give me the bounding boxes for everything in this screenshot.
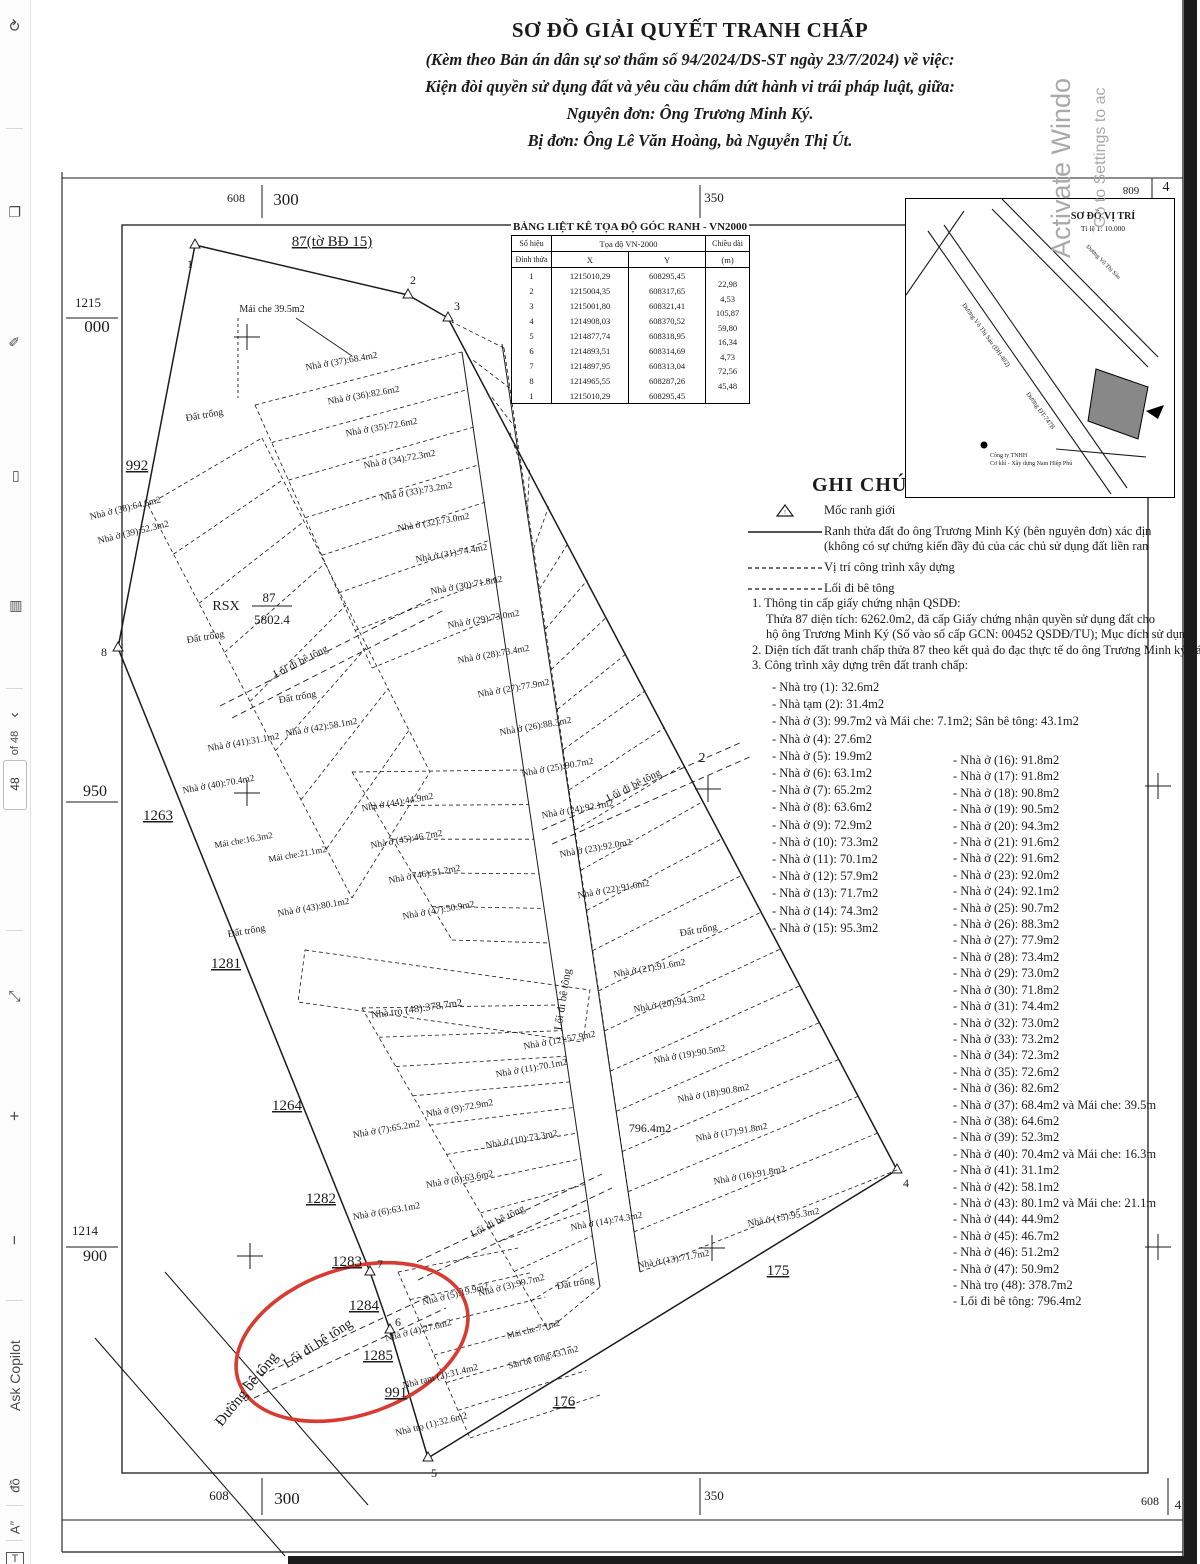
map-label: 000 bbox=[84, 317, 110, 336]
table-cell: 1214908,03 bbox=[552, 313, 629, 328]
list-item: - Nhà ở (19): 90.5m2 bbox=[953, 801, 1156, 817]
page-number-value: 48 bbox=[8, 773, 22, 795]
legend-item: Ranh thửa đất đo ông Trương Minh Ký (bên… bbox=[746, 524, 1196, 554]
map-label: 608 bbox=[209, 1488, 229, 1503]
chevron-icon[interactable]: ‹ bbox=[6, 700, 24, 730]
map-label: Nhà ở (22):91.6m2 bbox=[577, 878, 651, 902]
dashed-symbol bbox=[746, 560, 824, 575]
notes-block: 1. Thông tin cấp giấy chứng nhận QSDĐ: T… bbox=[752, 596, 1200, 674]
list-item: - Nhà ở (25): 90.7m2 bbox=[953, 900, 1156, 916]
translate-icon[interactable]: đồ bbox=[8, 1471, 23, 1501]
list-item: - Nhà ở (46): 51.2m2 bbox=[953, 1244, 1156, 1260]
map-label: 1284 bbox=[349, 1298, 380, 1314]
table-cell: 7 bbox=[512, 358, 552, 373]
list-item: - Nhà ở (17): 91.8m2 bbox=[953, 768, 1156, 784]
map-label: Nhà ở (29):73.0m2 bbox=[447, 608, 521, 632]
dashed-symbol bbox=[746, 581, 824, 596]
map-label: 175 bbox=[767, 1263, 790, 1279]
table-cell: 608321,41 bbox=[629, 298, 706, 313]
map-label: Nhà ở (31):74.4m2 bbox=[415, 542, 489, 566]
table-cell: 1215010,29 bbox=[552, 268, 629, 284]
map-label: Nhà ở (13):71.7m2 bbox=[637, 1248, 711, 1272]
map-label: Mái che 39.5m2 bbox=[239, 304, 304, 315]
map-label: Nhà ở (9):72.9m2 bbox=[425, 1097, 494, 1120]
list-item: - Nhà ở (33): 73.2m2 bbox=[953, 1031, 1156, 1047]
toolbar-divider bbox=[6, 1540, 23, 1541]
table-cell: 3 bbox=[512, 298, 552, 313]
map-label: 796.4m2 bbox=[629, 1121, 671, 1135]
map-label: Nhà ở (28):73.4m2 bbox=[457, 643, 531, 667]
list-item: - Nhà ở (29): 73.0m2 bbox=[953, 965, 1156, 981]
list-item: - Nhà ở (23): 92.0m2 bbox=[953, 867, 1156, 883]
table-cell: 1 bbox=[512, 268, 552, 284]
text-box-icon[interactable]: T bbox=[6, 1552, 24, 1564]
list-item: - Nhà ở (47): 50.9m2 bbox=[953, 1261, 1156, 1277]
map-label: Đất trống bbox=[556, 1275, 595, 1292]
map-label: Nhà ở (42):58.1m2 bbox=[285, 716, 359, 740]
map-label: 900 bbox=[83, 1248, 107, 1265]
length-value: 4,73 bbox=[706, 350, 749, 365]
length-value: 16,34 bbox=[706, 335, 749, 350]
map-label: Mái che:16.3m2 bbox=[214, 830, 274, 850]
list-item: - Nhà ở (28): 73.4m2 bbox=[953, 949, 1156, 965]
table-cell: 4 bbox=[512, 313, 552, 328]
title-sub1: (Kèm theo Bản án dân sự sơ thẩm số 94/20… bbox=[295, 50, 1085, 70]
legend-text: Mốc ranh giới bbox=[824, 503, 895, 518]
map-label: Nhà ở (39):52.3m2 bbox=[97, 518, 171, 546]
map-label: Nhà ở (17):91.8m2 bbox=[695, 1121, 769, 1145]
page-title: SƠ ĐỒ GIẢI QUYẾT TRANH CHẤP bbox=[295, 18, 1085, 43]
list-item: - Nhà ở (32): 73.0m2 bbox=[953, 1015, 1156, 1031]
map-label: 1283 bbox=[332, 1254, 362, 1270]
map-label: Nhà ở (36):82.6m2 bbox=[327, 384, 401, 408]
map-label: Nhà ở (8):63.6m2 bbox=[425, 1168, 494, 1191]
col-header-y: Y bbox=[629, 252, 706, 268]
list-item: - Nhà ở (22): 91.6m2 bbox=[953, 850, 1156, 866]
map-label: Nhà ở (33):73.2m2 bbox=[380, 480, 454, 504]
table-cell: 608313,04 bbox=[629, 358, 706, 373]
length-value: 59,80 bbox=[706, 321, 749, 336]
inset-road1-label: Đường Võ Thị Sáu (ĐH-402) bbox=[960, 302, 1011, 368]
map-label: 6 bbox=[395, 1315, 401, 1329]
table-cell: 2 bbox=[512, 283, 552, 298]
map-label: 608 bbox=[227, 191, 245, 205]
map-label: Nhà ở (10):73.3m2 bbox=[485, 1128, 559, 1152]
map-label: Lối đi bê tông bbox=[272, 643, 330, 680]
map-label: Đất trống bbox=[185, 407, 224, 424]
pdf-toolbar: ⟳❏✎▭▤‹of 48⤢+−Ask CopilotđồA″T 48 bbox=[0, 0, 31, 1564]
list-item: - Nhà ở (43): 80.1m2 và Mái che: 21.1m bbox=[953, 1195, 1156, 1211]
map-label: 992 bbox=[126, 458, 149, 474]
map-label: Nhà ở (44):44.9m2 bbox=[361, 791, 435, 815]
map-label: Nhà ở (45):46.7m2 bbox=[370, 828, 444, 852]
table-cell: 1214897,95 bbox=[552, 358, 629, 373]
map-label: 2 bbox=[699, 751, 706, 766]
read-aloud-icon[interactable]: A″ bbox=[8, 1513, 23, 1543]
map-label: Đất trống bbox=[186, 629, 225, 646]
map-label: 1281 bbox=[211, 956, 241, 972]
title-sub2: Kiện đòi quyền sử dụng đất và yêu cầu ch… bbox=[295, 77, 1085, 97]
legend-text: (không có sự chứng kiến đầy đủ của các c… bbox=[824, 539, 1151, 554]
note-1b: Thửa 87 diện tích: 6262.0m2, đã cấp Giấy… bbox=[766, 612, 1200, 628]
map-label: 1285 bbox=[363, 1348, 393, 1364]
col-header-x: X bbox=[552, 252, 629, 268]
map-label: Đất trống bbox=[227, 923, 266, 940]
fit-page-icon[interactable]: ⤢ bbox=[7, 982, 24, 1012]
length-value: 45,48 bbox=[706, 379, 749, 394]
coordinate-table: BẢNG LIỆT KÊ TỌA ĐỘ GÓC RANH - VN2000 Số… bbox=[511, 221, 749, 404]
list-item: - Nhà ở (21): 91.6m2 bbox=[953, 834, 1156, 850]
activate-windows-subtext: Go to Settings to ac bbox=[1092, 87, 1110, 228]
map-label: 300 bbox=[273, 190, 299, 209]
map-label: Nhà ở (38):64.6m2 bbox=[89, 494, 163, 522]
map-label: 4 bbox=[903, 1176, 909, 1190]
table-cell: 1214877,74 bbox=[552, 328, 629, 343]
table-cell: 608314,69 bbox=[629, 343, 706, 358]
structures-list-col2: - Nhà ở (16): 91.8m2- Nhà ở (17): 91.8m2… bbox=[953, 752, 1156, 1310]
map-label: Nhà ở (47):50.9m2 bbox=[402, 899, 476, 923]
list-item: - Nhà ở (31): 74.4m2 bbox=[953, 998, 1156, 1014]
inset-poi-label2: Cơ khí - Xây dựng Nam Hiệp Phú bbox=[990, 461, 1072, 467]
map-label: Nhà ở (34):72.3m2 bbox=[363, 448, 437, 472]
map-label: Nhà ở (21):91.6m2 bbox=[613, 957, 687, 981]
map-label: 87(tờ BĐ 15) bbox=[292, 234, 372, 250]
list-item: - Nhà ở (27): 77.9m2 bbox=[953, 932, 1156, 948]
pen-icon[interactable]: ✎ bbox=[7, 327, 24, 357]
map-label: Nhà ở (32):73.0m2 bbox=[397, 511, 471, 535]
map-label: 8 bbox=[101, 645, 107, 659]
list-item: - Nhà ở (16): 91.8m2 bbox=[953, 752, 1156, 768]
map-label: 5 bbox=[431, 1466, 437, 1480]
map-label: Sân bê tông:43.1m2 bbox=[507, 1343, 580, 1370]
map-label: Nhà ở (30):71.8m2 bbox=[430, 574, 504, 598]
map-label: 4 bbox=[1175, 1497, 1182, 1512]
list-item: - Nhà tạm (2): 31.4m2 bbox=[772, 696, 1079, 713]
zoom-out-icon[interactable]: − bbox=[5, 1225, 25, 1255]
length-value: 72,56 bbox=[706, 364, 749, 379]
table-cell: 1215010,29 bbox=[552, 388, 629, 404]
map-label: 350 bbox=[704, 190, 724, 205]
map-label: Nhà ở (7):65.2m2 bbox=[352, 1118, 421, 1141]
map-label: Nhà ở (35):72.6m2 bbox=[345, 416, 419, 440]
map-label: Nhà ở (41):31.1m2 bbox=[207, 731, 281, 755]
legend-text: Lối đi bê tông bbox=[824, 581, 894, 596]
map-label: Nhà ở (37):68.4m2 bbox=[305, 350, 379, 374]
col-header-coords: Tọa độ VN-2000 bbox=[552, 236, 706, 252]
list-item: - Nhà ở (34): 72.3m2 bbox=[953, 1047, 1156, 1063]
map-label: 608 bbox=[1122, 184, 1139, 196]
inset-road3-label: Đường Võ Thị Sáu bbox=[1085, 244, 1122, 281]
length-column: 22,984,53105,8759,8016,344,7372,5645,48 bbox=[706, 268, 750, 404]
legend-item: Lối đi bê tông bbox=[746, 581, 1196, 596]
ask-copilot-button[interactable]: Ask Copilot bbox=[7, 1381, 23, 1411]
list-item: - Nhà ở (39): 52.3m2 bbox=[953, 1129, 1156, 1145]
col-header-length1: Chiều dài bbox=[706, 236, 750, 252]
table-cell: 608295,45 bbox=[629, 268, 706, 284]
note-2: 2. Diện tích đất tranh chấp thửa 87 theo… bbox=[752, 643, 1200, 659]
highlight-icon[interactable]: ▭ bbox=[7, 462, 24, 492]
legend-text: Vị trí công trình xây dựng bbox=[824, 560, 955, 575]
map-label: Nhà ở (23):92.0m2 bbox=[559, 837, 633, 861]
toolbar-divider bbox=[6, 930, 23, 931]
coordinate-table-title: BẢNG LIỆT KÊ TỌA ĐỘ GÓC RANH - VN2000 bbox=[511, 221, 749, 233]
map-label: Nhà ở (15):95.3m2 bbox=[747, 1206, 821, 1230]
table-cell: 1215004,35 bbox=[552, 283, 629, 298]
map-label: 1 bbox=[187, 257, 193, 271]
list-item: - Nhà ở (30): 71.8m2 bbox=[953, 982, 1156, 998]
list-item: - Nhà ở (4): 27.6m2 bbox=[772, 731, 1079, 748]
svg-text:!: ! bbox=[784, 510, 786, 516]
document-title-block: SƠ ĐỒ GIẢI QUYẾT TRANH CHẤP (Kèm theo Bả… bbox=[295, 18, 1085, 151]
toolbar-divider bbox=[6, 128, 23, 129]
legend-item: !Mốc ranh giới bbox=[746, 503, 1196, 518]
map-label: Nhà ở (27):77.9m2 bbox=[477, 677, 551, 701]
pages-icon[interactable]: ❏ bbox=[7, 197, 24, 227]
table-cell: 6 bbox=[512, 343, 552, 358]
col-header-id1: Số hiệu bbox=[512, 236, 552, 252]
map-label: 87 bbox=[263, 590, 277, 605]
map-label: 176 bbox=[553, 1394, 576, 1410]
map-label: 300 bbox=[274, 1489, 300, 1508]
map-label: Nhà ở (26):88.3m2 bbox=[499, 715, 573, 739]
inset-road2-label: Đường ĐT-747B bbox=[1024, 391, 1056, 431]
legend-text: Ranh thửa đất đo ông Trương Minh Ký (bên… bbox=[824, 524, 1151, 539]
col-header-length2: (m) bbox=[706, 252, 750, 268]
map-label: Lối đi bê tông bbox=[281, 1316, 355, 1372]
list-item: - Nhà ở (38): 64.6m2 bbox=[953, 1113, 1156, 1129]
map-label: RSX bbox=[212, 599, 239, 614]
table-cell: 5 bbox=[512, 328, 552, 343]
map-label: Đất trống bbox=[679, 922, 718, 939]
map-label: 950 bbox=[83, 783, 107, 800]
triangle-symbol: ! bbox=[746, 503, 824, 518]
table-cell: 608317,65 bbox=[629, 283, 706, 298]
length-value: 105,87 bbox=[706, 306, 749, 321]
map-label: Nhà ở (43):80.1m2 bbox=[277, 896, 351, 920]
map-label: 1282 bbox=[306, 1191, 336, 1207]
map-label: Đường bê tông bbox=[212, 1349, 282, 1430]
poi-dot bbox=[981, 442, 988, 449]
list-item: - Nhà ở (3): 99.7m2 và Mái che: 7.1m2; S… bbox=[772, 713, 1079, 730]
title-sub4: Bị đơn: Ông Lê Văn Hoàng, bà Nguyễn Thị … bbox=[295, 131, 1085, 151]
list-item: - Nhà ở (37): 68.4m2 và Mái che: 39.5m bbox=[953, 1097, 1156, 1113]
list-item: - Nhà trọ (1): 32.6m2 bbox=[772, 679, 1079, 696]
screen: ⟳❏✎▭▤‹of 48⤢+−Ask CopilotđồA″T 48 Activa… bbox=[0, 0, 1200, 1564]
print-icon[interactable]: ▤ bbox=[7, 592, 24, 622]
map-label: 1214 bbox=[72, 1223, 99, 1238]
page-count-label: of 48 bbox=[9, 728, 21, 758]
list-item: - Lối đi bê tông: 796.4m2 bbox=[953, 1293, 1156, 1309]
list-item: - Nhà ở (35): 72.6m2 bbox=[953, 1064, 1156, 1080]
table-cell: 8 bbox=[512, 373, 552, 388]
map-label: 350 bbox=[704, 1488, 724, 1503]
table-cell: 608370,52 bbox=[629, 313, 706, 328]
list-item: - Nhà ở (24): 92.1m2 bbox=[953, 883, 1156, 899]
zoom-in-icon[interactable]: + bbox=[5, 1101, 25, 1131]
map-label: 1215 bbox=[75, 295, 101, 310]
solid-symbol bbox=[746, 524, 824, 539]
toolbar-divider bbox=[6, 1300, 23, 1301]
map-label: 7 bbox=[377, 1257, 383, 1271]
activate-windows-watermark: Activate Windo bbox=[1046, 78, 1077, 258]
note-1: 1. Thông tin cấp giấy chứng nhận QSDĐ: bbox=[752, 596, 1200, 612]
col-header-id2: Đỉnh thửa bbox=[512, 252, 552, 268]
table-cell: 1 bbox=[512, 388, 552, 404]
map-label: Nhà ở (16):91.8m2 bbox=[713, 1164, 787, 1188]
table-cell: 1215001,80 bbox=[552, 298, 629, 313]
rotate-icon[interactable]: ⟳ bbox=[6, 10, 24, 40]
map-label: Nhà ở (12):57.9m2 bbox=[523, 1029, 597, 1053]
length-value: 22,98 bbox=[706, 277, 749, 292]
list-item: - Nhà ở (44): 44.9m2 bbox=[953, 1211, 1156, 1227]
note-3: 3. Công trình xây dựng trên đất tranh ch… bbox=[752, 658, 1200, 674]
map-label: Nhà ở (25):90.7m2 bbox=[521, 756, 595, 780]
table-row: 11215010,29608295,4522,984,53105,8759,80… bbox=[512, 268, 750, 284]
map-label: 5802.4 bbox=[254, 612, 290, 627]
map-label: 4 bbox=[1163, 180, 1170, 195]
toolbar-divider bbox=[6, 688, 23, 689]
list-item: - Nhà trọ (48): 378.7m2 bbox=[953, 1277, 1156, 1293]
map-label: Nhà ở (20):94.3m2 bbox=[633, 992, 707, 1016]
list-item: - Nhà ở (42): 58.1m2 bbox=[953, 1179, 1156, 1195]
map-label: 3 bbox=[454, 299, 460, 313]
table-cell: 1214965,55 bbox=[552, 373, 629, 388]
toolbar-divider bbox=[6, 1505, 23, 1506]
map-label: Mái che:21.1m2 bbox=[268, 844, 328, 864]
map-label: 1263 bbox=[143, 808, 173, 824]
list-item: - Nhà ở (41): 31.1m2 bbox=[953, 1162, 1156, 1178]
map-label: Nhà ở (6):63.1m2 bbox=[352, 1200, 421, 1223]
map-label: Lối đi bê tông bbox=[552, 967, 574, 1031]
map-label: Nhà ở (46):51.2m2 bbox=[388, 863, 462, 887]
page-number-input[interactable]: 48 bbox=[3, 760, 27, 810]
inset-poi-label1: Công ty TNHH bbox=[990, 453, 1028, 459]
table-cell: 1214893,51 bbox=[552, 343, 629, 358]
map-label: Nhà ở (11):70.1m2 bbox=[495, 1057, 569, 1080]
map-label: Nhà ở (14):74.3m2 bbox=[570, 1210, 644, 1234]
map-label: 1264 bbox=[272, 1098, 303, 1114]
map-label: 608 bbox=[1141, 1494, 1159, 1508]
legend-item: Vị trí công trình xây dựng bbox=[746, 560, 1196, 575]
table-cell: 608295,45 bbox=[629, 388, 706, 404]
table-cell: 608318,95 bbox=[629, 328, 706, 343]
list-item: - Nhà ở (36): 82.6m2 bbox=[953, 1080, 1156, 1096]
map-label: 2 bbox=[410, 273, 416, 287]
title-sub3: Nguyên đơn: Ông Trương Minh Ký. bbox=[295, 104, 1085, 124]
list-item: - Nhà ở (26): 88.3m2 bbox=[953, 916, 1156, 932]
list-item: - Nhà ở (40): 70.4m2 và Mái che: 16.3m bbox=[953, 1146, 1156, 1162]
map-label: Nhà trọ (48):378.7m2 bbox=[370, 998, 463, 1022]
map-label: Nhà ở (19):90.5m2 bbox=[653, 1043, 727, 1067]
list-item: - Nhà ở (45): 46.7m2 bbox=[953, 1228, 1156, 1244]
note-1c: hộ ông Trương Minh Ký (Số vào số cấp GCN… bbox=[766, 627, 1200, 643]
map-label: Mái che:7.1m2 bbox=[506, 1318, 561, 1341]
list-item: - Nhà ở (18): 90.8m2 bbox=[953, 785, 1156, 801]
table-cell: 608287,26 bbox=[629, 373, 706, 388]
map-label: Nhà ở (24):92.1m2 bbox=[541, 798, 615, 822]
map-label: Đất trống bbox=[278, 689, 317, 706]
list-item: - Nhà ở (20): 94.3m2 bbox=[953, 818, 1156, 834]
map-label: Nhà trọ (1):32.6m2 bbox=[394, 1410, 468, 1439]
location-inset-map: SƠ ĐỒ VỊ TRÍ Tỉ lệ 1: 10.000 Đường Võ Th… bbox=[905, 198, 1175, 498]
length-value: 4,53 bbox=[706, 292, 749, 307]
